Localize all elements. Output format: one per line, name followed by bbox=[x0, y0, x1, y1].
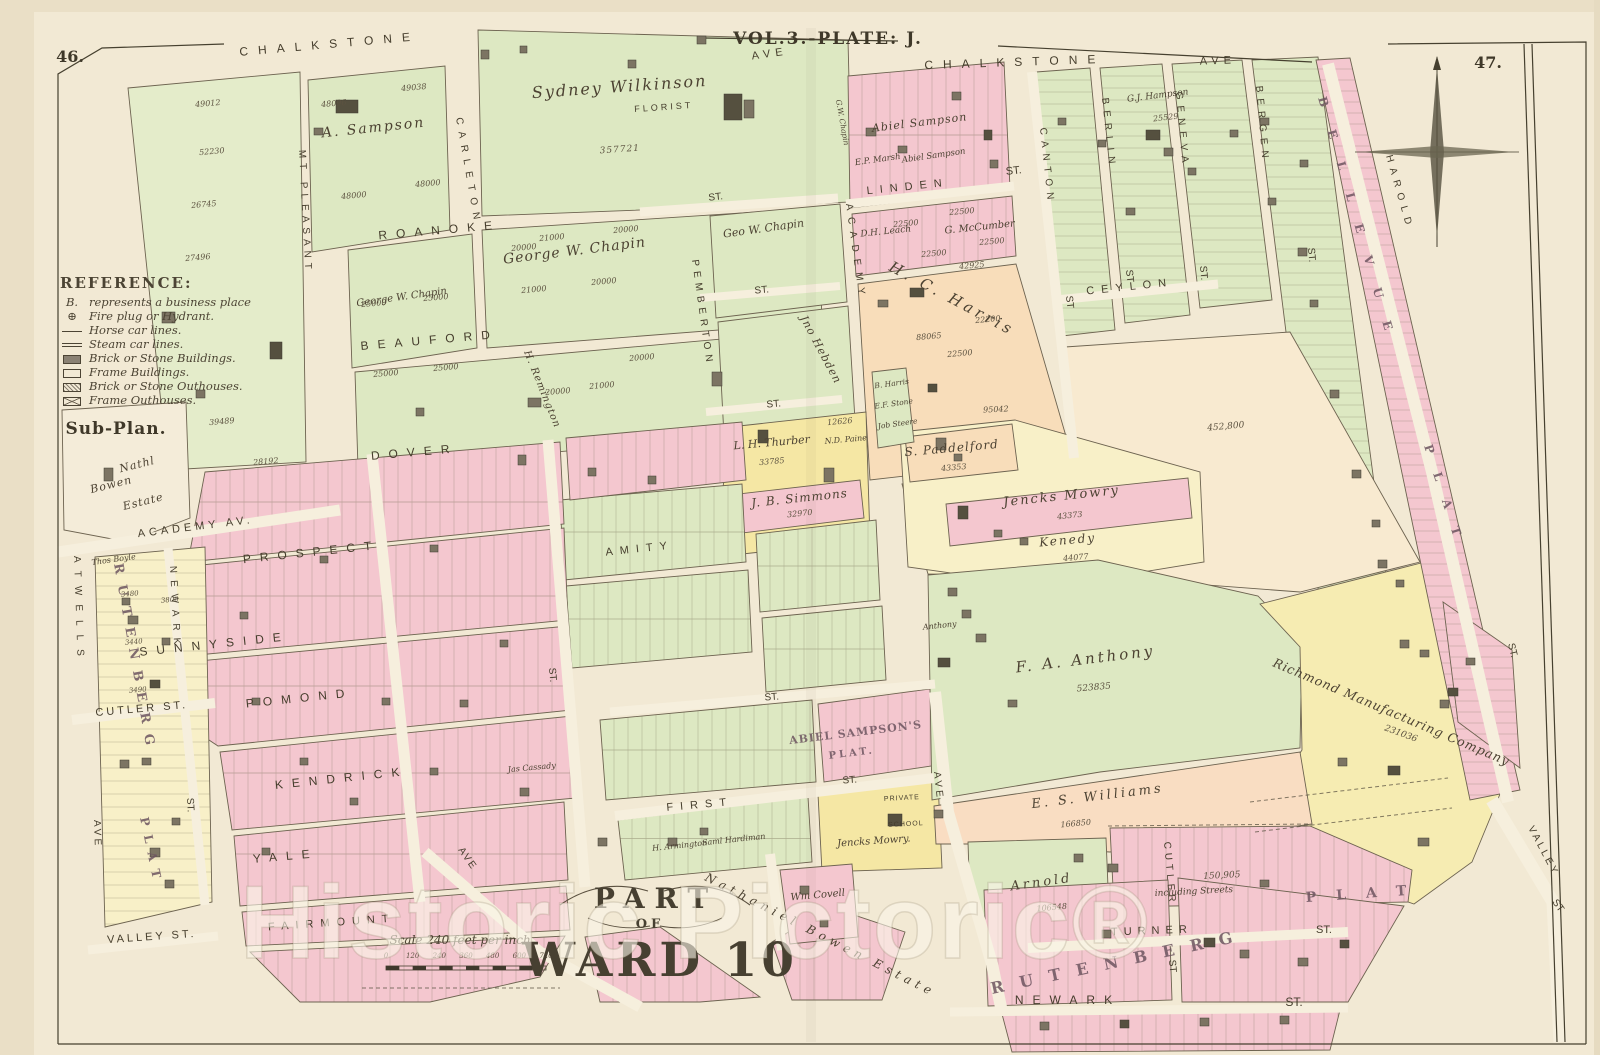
building bbox=[1310, 300, 1318, 307]
street-label: ST. bbox=[1305, 247, 1317, 262]
street-label: ST. bbox=[1197, 265, 1209, 280]
legend-row: Horse car lines. bbox=[60, 323, 290, 337]
legend-label: Brick or Stone Outhouses. bbox=[89, 379, 243, 393]
street-label: ST. bbox=[1316, 924, 1332, 936]
legend-label: Horse car lines. bbox=[89, 323, 181, 337]
map-block bbox=[478, 30, 852, 216]
building bbox=[1074, 854, 1083, 862]
building bbox=[481, 50, 489, 59]
legend-row: ⊕ Fire plug or Hydrant. bbox=[60, 309, 290, 323]
building bbox=[934, 810, 943, 818]
atlas-plate-page: Scale 240 feet per inch.0120240360480600… bbox=[0, 0, 1600, 1055]
building bbox=[518, 455, 526, 465]
building bbox=[1058, 118, 1066, 125]
building bbox=[824, 468, 834, 482]
legend-label: represents a business place bbox=[89, 295, 251, 309]
building bbox=[628, 60, 636, 68]
steam-car-line-icon bbox=[60, 337, 84, 351]
building bbox=[1008, 700, 1017, 707]
building bbox=[528, 398, 541, 407]
building bbox=[1240, 950, 1249, 958]
number-label: 3440 bbox=[125, 637, 144, 647]
building bbox=[416, 408, 424, 416]
building bbox=[1200, 1018, 1209, 1026]
street-label: ST. bbox=[184, 798, 196, 813]
building bbox=[520, 46, 527, 53]
brick-stone-outhouse-icon bbox=[60, 379, 84, 393]
building bbox=[165, 880, 174, 888]
building bbox=[1396, 580, 1404, 587]
building bbox=[744, 100, 754, 118]
building bbox=[460, 700, 468, 707]
paper-edge-top bbox=[0, 0, 1600, 12]
watermark: Historic Pictoric® bbox=[240, 865, 1150, 981]
street-label: ST bbox=[1123, 269, 1135, 283]
street-label: NEWARK bbox=[1015, 993, 1121, 1007]
legend-row: Brick or Stone Outhouses. bbox=[60, 379, 290, 393]
street-label: ST. bbox=[546, 667, 558, 682]
building bbox=[958, 506, 968, 519]
scan-fold-shadow bbox=[806, 28, 816, 1042]
number-label: 150,905 bbox=[1203, 870, 1241, 882]
title-label: Sub-Plan. bbox=[65, 419, 166, 439]
building bbox=[1418, 838, 1429, 846]
building bbox=[382, 698, 390, 705]
number-label: 3480 bbox=[121, 589, 140, 599]
number-label: 95042 bbox=[983, 404, 1009, 414]
building bbox=[172, 818, 180, 825]
building bbox=[430, 545, 438, 552]
building bbox=[1378, 560, 1387, 568]
legend-row: Frame Buildings. bbox=[60, 365, 290, 379]
building bbox=[712, 372, 722, 386]
building bbox=[928, 384, 937, 392]
legend-label: Steam car lines. bbox=[89, 337, 183, 351]
building bbox=[700, 828, 708, 835]
map-canvas: Scale 240 feet per inch.0120240360480600… bbox=[0, 0, 1600, 1055]
building bbox=[952, 92, 961, 100]
building bbox=[520, 788, 529, 796]
business-place-mark-icon: B. bbox=[60, 295, 84, 309]
street-label: ST. bbox=[754, 284, 769, 296]
map-block bbox=[1002, 1010, 1340, 1052]
building bbox=[878, 300, 888, 307]
building bbox=[1188, 168, 1196, 175]
building bbox=[1352, 470, 1361, 478]
street-label: ST. bbox=[1285, 995, 1302, 1009]
building bbox=[1440, 700, 1449, 708]
building bbox=[300, 758, 308, 765]
building bbox=[948, 588, 957, 596]
building bbox=[1280, 1016, 1289, 1024]
horse-car-line-icon bbox=[60, 323, 84, 337]
building bbox=[350, 798, 358, 805]
building bbox=[150, 680, 160, 688]
street-label: ST bbox=[1063, 295, 1075, 309]
building bbox=[240, 612, 248, 619]
building bbox=[500, 640, 508, 647]
street-label: ST. bbox=[842, 775, 857, 787]
building bbox=[1420, 650, 1429, 657]
building bbox=[1260, 880, 1269, 887]
street-label: ST bbox=[1166, 959, 1178, 973]
building bbox=[1388, 766, 1400, 775]
title-label: 46. bbox=[56, 47, 84, 66]
street-label: ST. bbox=[766, 398, 781, 410]
building bbox=[1146, 130, 1160, 140]
building bbox=[120, 760, 129, 768]
building bbox=[1020, 538, 1028, 545]
street-label: AVE bbox=[1200, 54, 1237, 67]
building bbox=[1040, 1022, 1049, 1030]
street-label: AVE bbox=[91, 820, 103, 849]
building bbox=[954, 454, 962, 461]
building bbox=[1298, 958, 1308, 966]
reference-title: REFERENCE: bbox=[60, 274, 290, 292]
building bbox=[1300, 160, 1308, 167]
legend-label: Frame Outhouses. bbox=[89, 393, 196, 407]
building bbox=[430, 768, 438, 775]
building bbox=[984, 130, 992, 140]
building bbox=[1372, 520, 1380, 527]
title-label: VOL.3.-PLATE: J. bbox=[732, 29, 923, 49]
building bbox=[1340, 940, 1349, 948]
building bbox=[724, 94, 742, 120]
building bbox=[1448, 688, 1458, 696]
building bbox=[588, 468, 596, 476]
legend-row: Brick or Stone Buildings. bbox=[60, 351, 290, 365]
number-label: 3490 bbox=[129, 685, 148, 695]
frame-outhouse-icon bbox=[60, 393, 84, 407]
legend-row: Frame Outhouses. bbox=[60, 393, 290, 407]
building bbox=[142, 758, 151, 765]
legend-label: Brick or Stone Buildings. bbox=[89, 351, 236, 365]
building bbox=[938, 658, 950, 667]
building bbox=[598, 838, 607, 846]
building bbox=[1120, 1020, 1129, 1028]
building bbox=[1466, 658, 1475, 665]
legend-row: Steam car lines. bbox=[60, 337, 290, 351]
building bbox=[976, 634, 986, 642]
building bbox=[994, 530, 1002, 537]
legend-row: B. represents a business place bbox=[60, 295, 290, 309]
paper-edge-left bbox=[0, 0, 34, 1055]
street-label: ST. bbox=[764, 692, 779, 704]
reference-legend: REFERENCE: B. represents a business plac… bbox=[60, 274, 290, 407]
building bbox=[1126, 208, 1135, 215]
street-label: ST. bbox=[1005, 164, 1022, 178]
building bbox=[1400, 640, 1409, 648]
building bbox=[697, 36, 706, 44]
building bbox=[1268, 198, 1276, 205]
building bbox=[648, 476, 656, 484]
building bbox=[962, 610, 971, 618]
building bbox=[1330, 390, 1339, 398]
street-label: ST. bbox=[708, 191, 724, 203]
building bbox=[1338, 758, 1347, 766]
number-label: 3800 bbox=[161, 595, 180, 605]
building bbox=[990, 160, 998, 168]
brick-stone-building-icon bbox=[60, 351, 84, 365]
fire-plug-hydrant-icon: ⊕ bbox=[60, 309, 84, 323]
building bbox=[1230, 130, 1238, 137]
title-label: 47. bbox=[1474, 53, 1502, 72]
legend-label: Frame Buildings. bbox=[89, 365, 189, 379]
paper-edge-right bbox=[1594, 0, 1600, 1055]
legend-label: Fire plug or Hydrant. bbox=[89, 309, 214, 323]
building bbox=[1164, 148, 1173, 156]
frame-building-icon bbox=[60, 365, 84, 379]
